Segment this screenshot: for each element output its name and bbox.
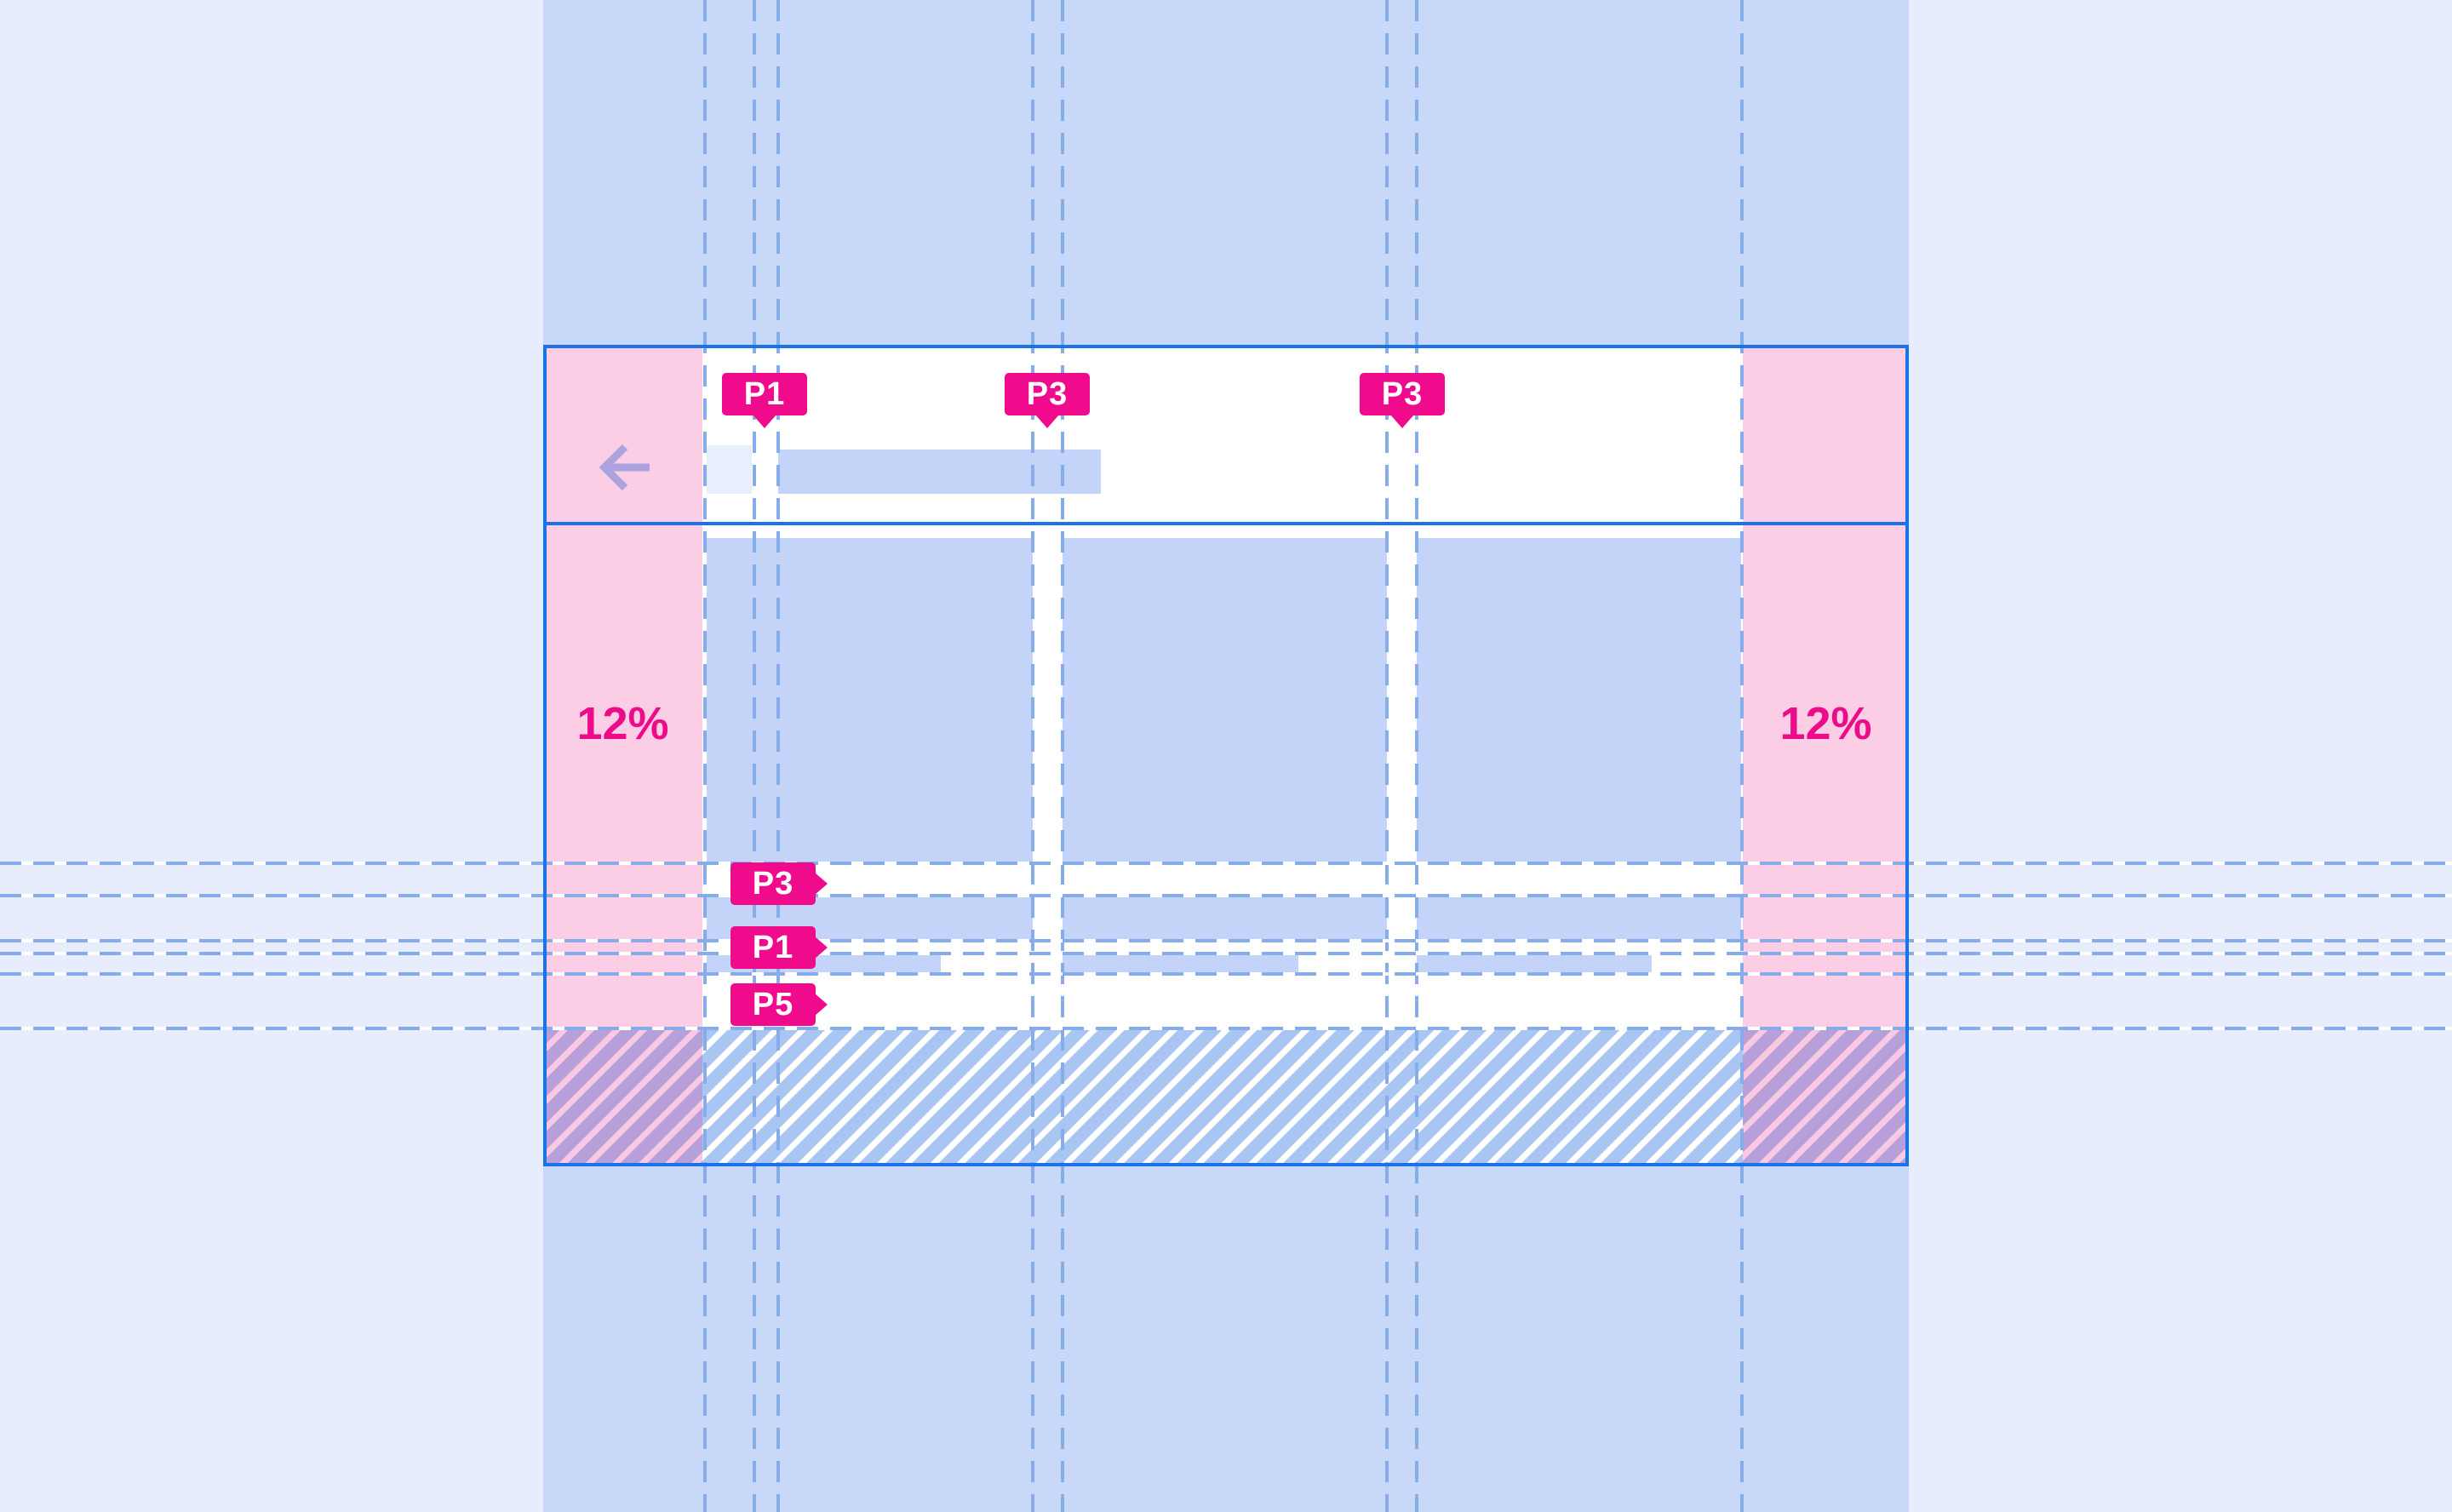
back-button [597,442,651,493]
right-margin-percentage: 12% [1743,698,1909,749]
layout-spec-canvas: P1 P3 P3 P3 P1 P5 12% 12% [0,0,2452,1512]
left-margin-percentage: 12% [543,698,702,749]
padding-label-p3: P3 [1005,373,1090,415]
padding-label-p1: P1 [730,926,816,969]
arrow-back-icon [597,442,651,493]
device-frame-outline [543,345,1909,1166]
padding-label-p5: P5 [730,983,816,1026]
padding-label-p1: P1 [722,373,807,415]
padding-label-p3: P3 [1360,373,1445,415]
padding-label-p3: P3 [730,862,816,905]
